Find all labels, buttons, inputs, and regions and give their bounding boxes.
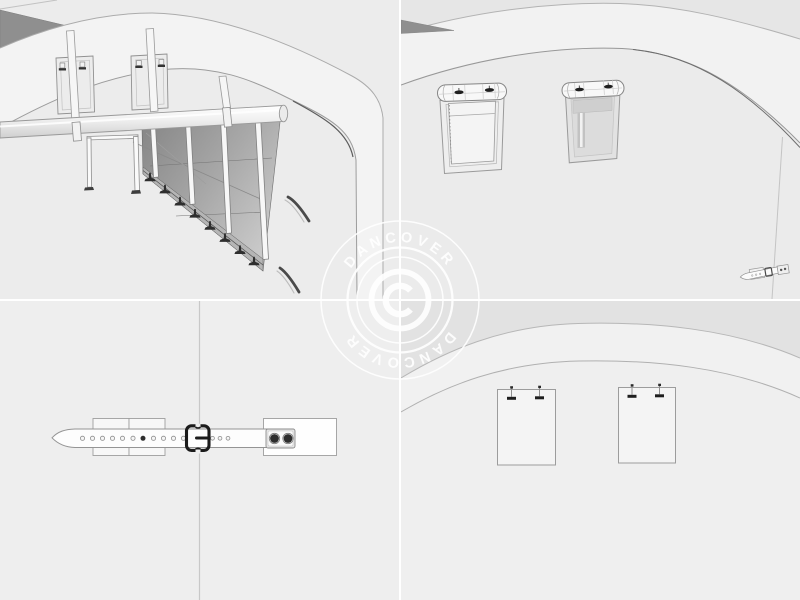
hanger-clip-icon (538, 386, 541, 388)
image-grid (0, 0, 800, 600)
cover-panel-left (498, 386, 556, 465)
quadrant-bottom-right-illustration (401, 301, 800, 600)
hanger-clip-icon (137, 61, 142, 66)
frame-foot (84, 187, 94, 191)
rolled-cover (437, 83, 507, 102)
quadrant-top-right-illustration (401, 0, 800, 299)
hanger-clip-icon (158, 65, 165, 67)
cover-panel-right (619, 384, 676, 463)
hanger-clip-icon (507, 397, 516, 400)
hanger-clip-icon (655, 394, 664, 397)
hanger-clip-icon (135, 66, 142, 68)
hanger-clip-icon (535, 396, 544, 399)
snap-rivet-icon (284, 434, 293, 443)
quadrant-top-left-illustration (0, 0, 399, 299)
hanger-clip-icon (80, 62, 85, 67)
hanger-clip-icon (628, 395, 637, 398)
pole-end-cap (279, 105, 287, 122)
hanger-clip-icon (510, 386, 513, 388)
hanger-clip-icon (159, 60, 164, 65)
frame-foot (131, 190, 141, 194)
hanger-clip-icon (59, 68, 66, 70)
engaged-hole (141, 436, 145, 440)
snap-rivet-icon (270, 434, 279, 443)
hanger-clip-icon (631, 384, 634, 386)
interior-beam-through-pane (573, 98, 612, 114)
rollup-window-left (437, 83, 507, 174)
quadrant-bottom-left-illustration (0, 301, 399, 600)
rollup-window-right (562, 79, 625, 163)
window-flap (449, 101, 496, 164)
hanger-clip-icon (60, 63, 65, 68)
product-image-collage: DANCOVER DANCOVER (0, 0, 800, 600)
hanger-clip-icon (79, 67, 86, 69)
hanger-clip-icon (658, 384, 661, 386)
snap-plate (266, 429, 295, 448)
